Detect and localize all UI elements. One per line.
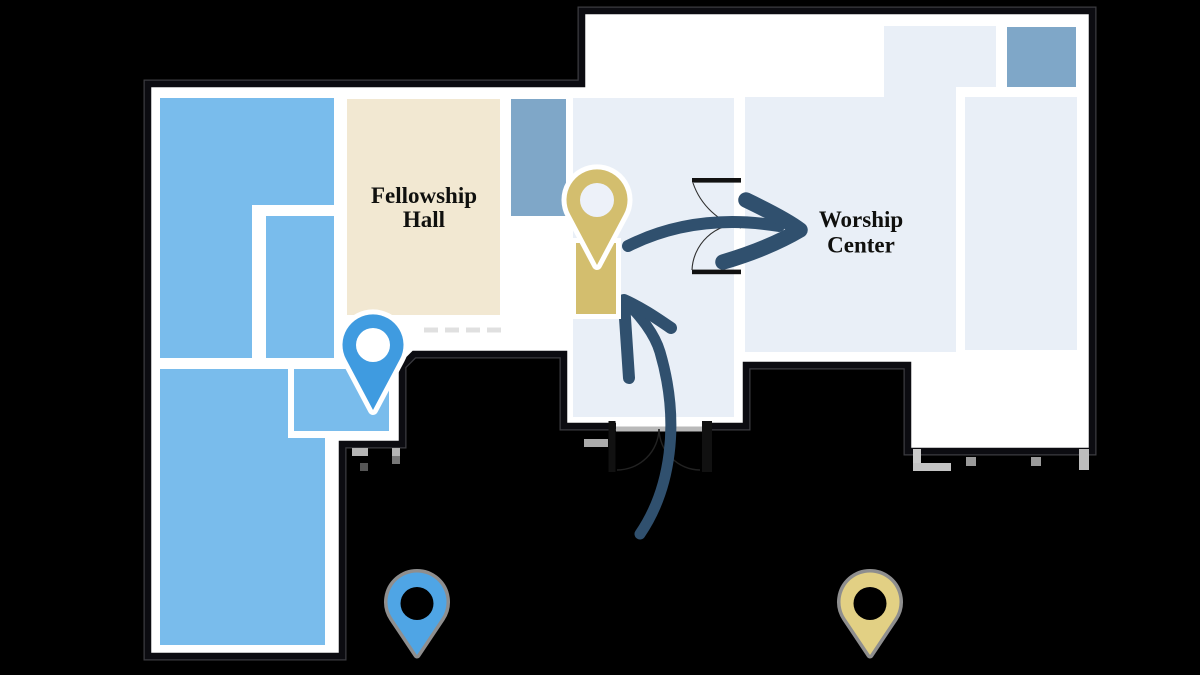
svg-text:Worship: Worship: [819, 207, 903, 232]
svg-text:Fellowship: Fellowship: [371, 183, 477, 208]
svg-text:Center: Center: [827, 233, 895, 258]
svg-text:Hall: Hall: [403, 207, 445, 232]
